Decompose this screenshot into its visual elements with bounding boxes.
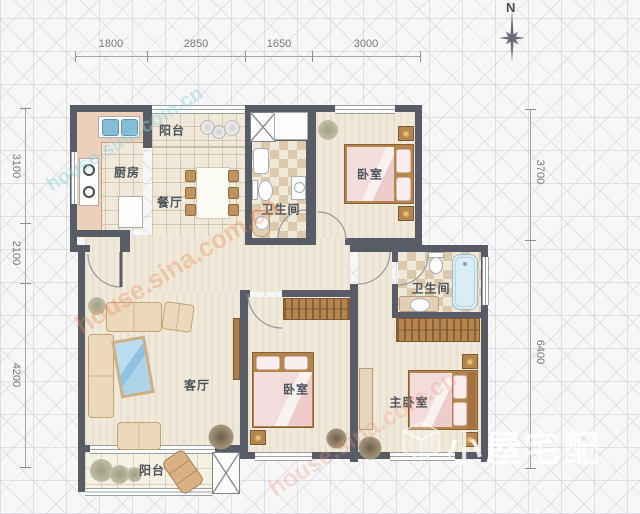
window-bedroom-top [335,105,395,114]
bath2-basin [410,298,430,312]
balcony-sill-line [152,146,245,148]
wall-bedroom-mid-west [240,290,248,459]
vestibule-floor [358,252,392,318]
dining-chair [185,170,196,182]
dim-right-1: 3700 [534,160,546,184]
dim-top-4: 3000 [354,38,378,50]
flower-pot-icon [224,120,240,136]
wall-entry-left [70,245,90,252]
room-label-master: 主卧室 [389,394,428,411]
sink-basin [102,119,119,136]
room-label-bedroom-mid: 卧室 [283,381,309,398]
wall-bedroom-mid-north [282,290,350,297]
dim-top-1: 1800 [99,38,123,50]
dim-left-3: 4200 [10,363,22,387]
washer-drum [294,182,305,193]
bed-pillow [396,149,411,173]
dim-tick [20,467,31,468]
dining-chair [185,204,196,216]
dim-line-left [25,108,26,467]
wall-mid-vertical [350,284,358,462]
dim-tick [147,51,148,62]
dining-chair [228,170,239,182]
sink-basin [121,119,138,136]
sofa [88,334,114,418]
bed-pillow [396,177,411,201]
vent-shaft-icon [212,452,240,494]
armchair [161,301,195,333]
dining-chair [228,187,239,199]
dim-left-1: 3100 [10,154,22,178]
toilet-icon [429,257,443,274]
kitchen-cabinet [118,196,143,228]
plant-icon [208,424,234,450]
wall-kitchen-balcony-divider [143,105,152,148]
dim-tick [312,51,313,62]
bed-pillow [284,356,308,370]
compass-north-label: N [506,0,515,15]
wall-west-living [78,252,85,452]
room-label-living: 客厅 [184,377,210,394]
dim-line-top [75,56,420,57]
stove-burner [83,186,95,198]
room-label-bath1: 卫生间 [261,201,300,218]
dim-tick [20,108,31,109]
toilet-icon [258,180,273,201]
logo-watermark-text: 小屋宅配 [446,420,602,472]
dresser [359,368,373,430]
tv-cabinet [233,318,240,380]
bath1-basin [255,216,269,230]
dim-tick [525,109,536,110]
dim-right-2: 6400 [534,340,546,364]
dim-tick [420,51,421,62]
wall-balcony-west [78,452,85,492]
utility-nook [274,112,308,140]
plant-icon [326,428,347,449]
wardrobe [396,318,480,342]
dim-tick [75,51,76,62]
nightstand [250,430,266,445]
dining-chair [228,204,239,216]
room-label-bath2: 卫生间 [411,280,450,297]
dim-line-right [530,109,531,468]
bed-pillow [453,375,467,399]
room-label-dining: 餐厅 [157,194,183,211]
room-label-balcony-top: 阳台 [159,122,185,139]
dim-top-2: 2850 [184,38,208,50]
nightstand [398,126,414,141]
plant-icon [358,436,382,460]
bath1-cabinet [253,148,269,174]
dim-top-3: 1650 [267,38,291,50]
room-label-kitchen: 厨房 [114,164,140,181]
dim-left-2: 2100 [10,241,22,265]
nightstand [462,354,478,369]
window-bedroom-mid [255,452,312,461]
armchair [117,422,161,450]
sofa [106,302,162,332]
plant-icon [88,297,106,315]
nightstand [398,206,414,221]
compass-icon [492,8,532,64]
wall-bedroom-top-east [415,105,422,245]
dim-tick [20,283,31,284]
room-label-bedroom-top: 卧室 [357,166,383,183]
vent-shaft-icon [250,112,276,142]
dim-tick [20,223,31,224]
plant-icon [318,120,338,140]
wardrobe [283,298,350,320]
floorplan-canvas: 1800 2850 1650 3000 3100 2100 4200 3700 … [0,0,640,514]
wall-mid-stub [350,238,358,252]
bathtub-drain [463,262,467,266]
dim-tick [245,51,246,62]
room-label-balcony-bottom: 阳台 [139,462,165,479]
bed-pillow [256,356,280,370]
stove-burner [83,164,95,176]
wall-entry-post [120,230,130,252]
dim-tick [525,240,536,241]
window-bath2 [482,257,489,305]
wall-bath2-west-upper [392,252,398,262]
dining-table [196,167,230,219]
dining-chair [185,187,196,199]
window-balcony-top [152,105,245,114]
wall-suite-north [358,245,488,252]
wall-bath1-south [245,238,310,245]
